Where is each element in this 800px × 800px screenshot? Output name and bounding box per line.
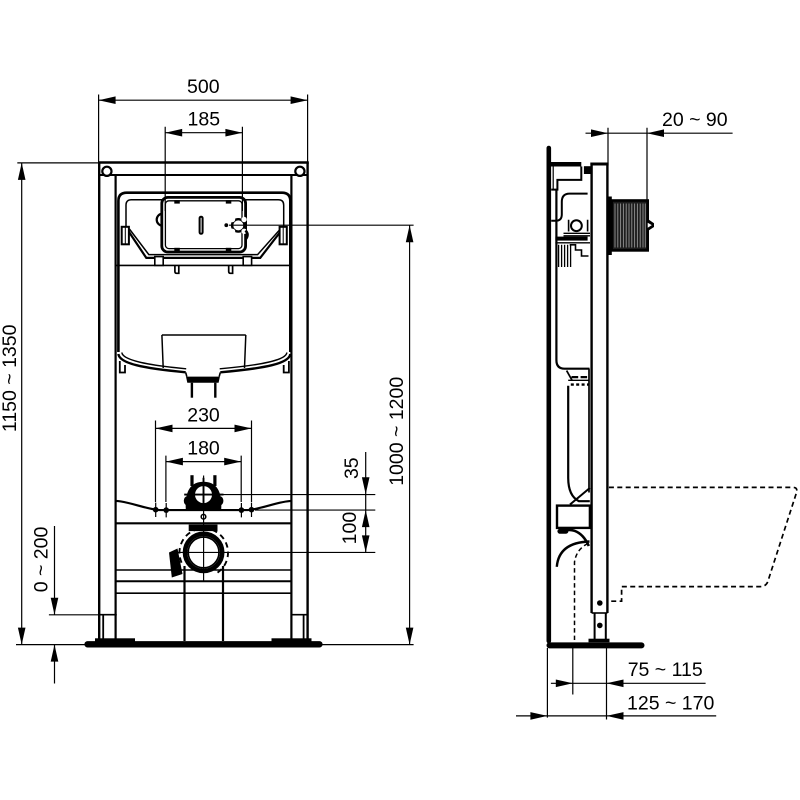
svg-text:20 ~ 90: 20 ~ 90 (662, 109, 728, 131)
svg-text:185: 185 (188, 108, 221, 130)
svg-text:0 ~ 200: 0 ~ 200 (31, 527, 53, 593)
svg-text:100: 100 (339, 512, 361, 545)
svg-text:1150 ~ 1350: 1150 ~ 1350 (0, 324, 21, 432)
svg-text:1000 ~ 1200: 1000 ~ 1200 (386, 377, 408, 486)
svg-text:75 ~ 115: 75 ~ 115 (628, 659, 703, 681)
svg-text:500: 500 (187, 76, 220, 98)
svg-text:35: 35 (341, 457, 363, 479)
svg-text:180: 180 (187, 438, 220, 460)
svg-text:125 ~ 170: 125 ~ 170 (627, 693, 714, 715)
svg-text:230: 230 (187, 404, 220, 426)
